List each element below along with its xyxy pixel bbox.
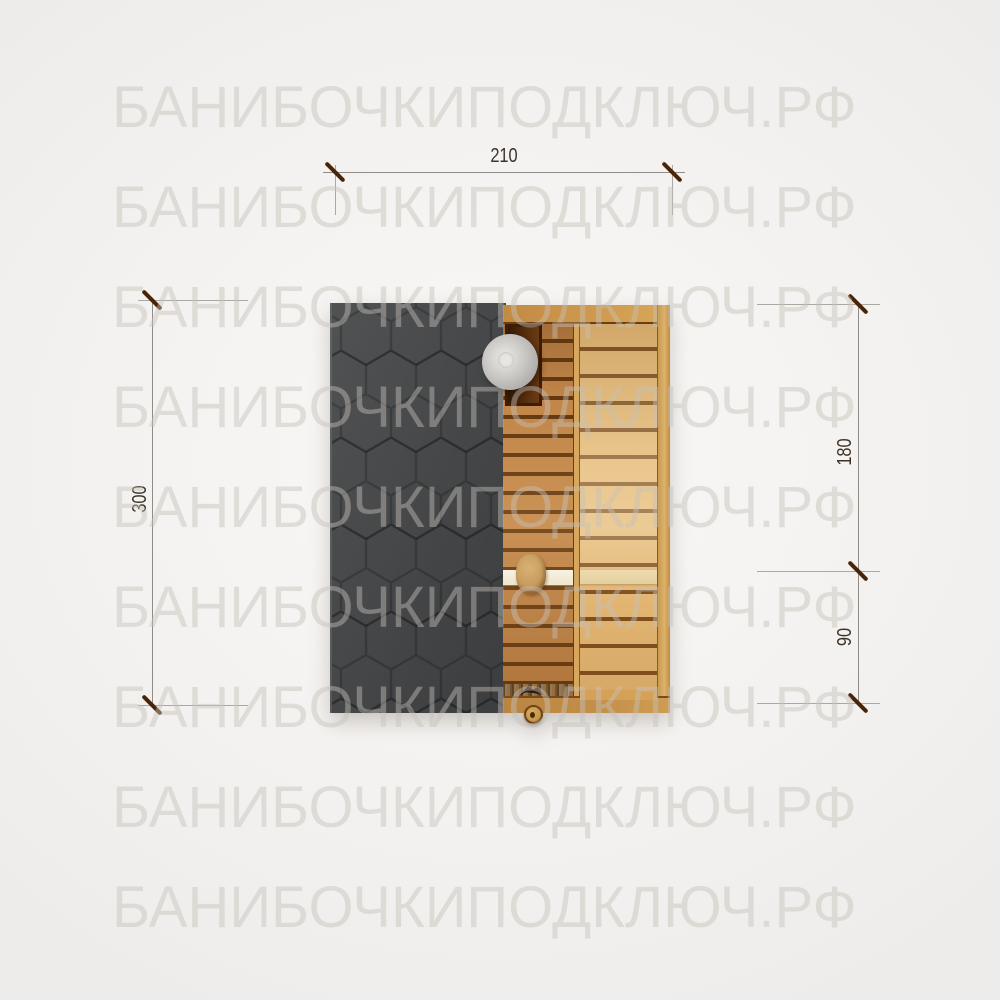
dimension-line-top (323, 172, 685, 173)
canvas-background: 210 300 180 90 БАНИБОЧКИПОДКЛЮЧ.РФБАНИБО… (0, 0, 1000, 1000)
dimension-label-right-upper: 180 (835, 423, 855, 480)
dimension-line-left (152, 300, 153, 706)
dimension-label-top: 210 (471, 146, 537, 166)
dimension-annotations: 210 300 180 90 (0, 0, 1000, 1000)
dimension-line-right (858, 304, 859, 704)
dimension-label-right-lower: 90 (835, 608, 855, 665)
dimension-label-left: 300 (130, 470, 150, 527)
